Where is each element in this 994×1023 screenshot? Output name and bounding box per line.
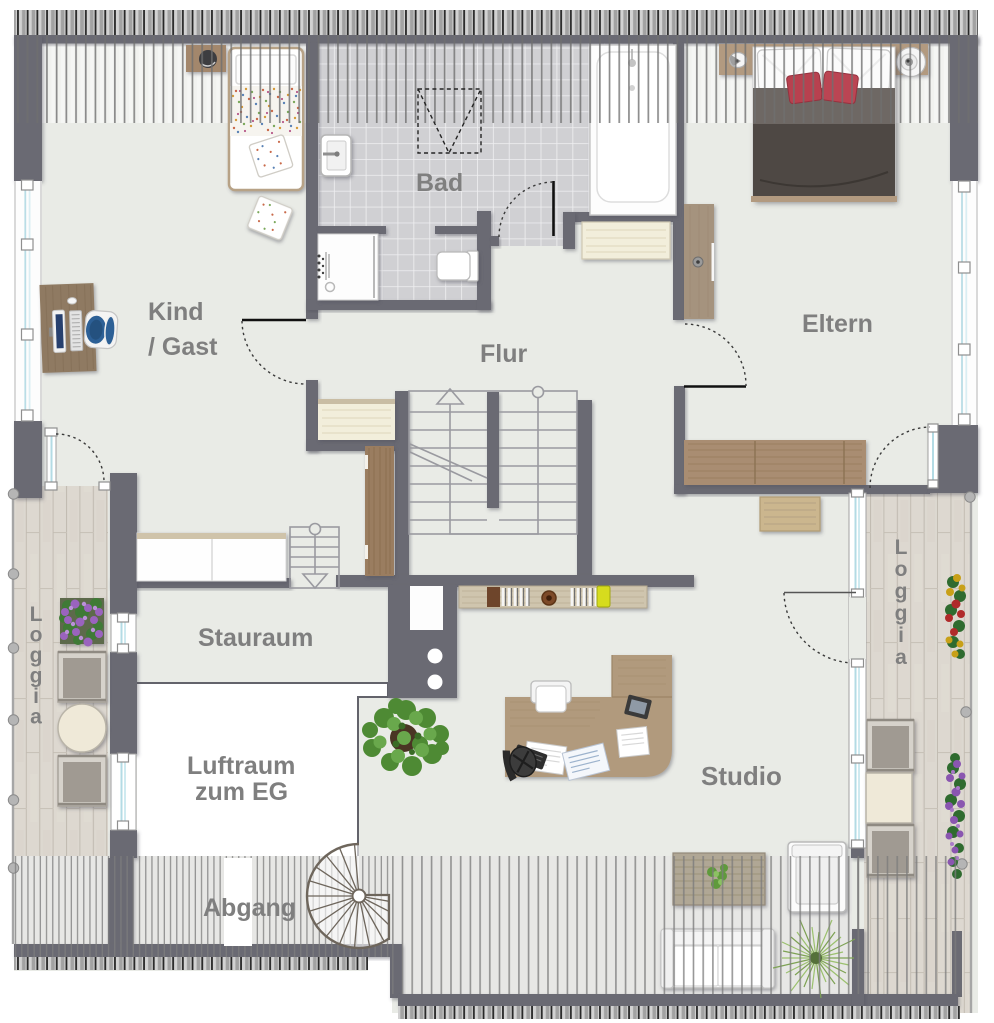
svg-text:Flur: Flur: [480, 340, 527, 368]
svg-text:a: a: [30, 706, 42, 729]
svg-text:g: g: [895, 602, 908, 625]
svg-text:Kind: Kind: [148, 298, 204, 326]
svg-text:g: g: [895, 580, 908, 603]
svg-text:Abgang: Abgang: [203, 894, 296, 922]
svg-text:L: L: [895, 536, 908, 559]
svg-text:Stauraum: Stauraum: [198, 624, 313, 652]
svg-text:Studio: Studio: [701, 761, 782, 791]
svg-text:Luftraum: Luftraum: [187, 752, 295, 780]
svg-text:i: i: [898, 624, 904, 647]
svg-text:o: o: [895, 558, 908, 581]
svg-text:/ Gast: / Gast: [148, 333, 218, 361]
svg-text:Bad: Bad: [416, 169, 463, 197]
svg-text:a: a: [895, 646, 907, 669]
svg-text:zum EG: zum EG: [195, 778, 288, 806]
svg-text:Eltern: Eltern: [802, 310, 873, 338]
